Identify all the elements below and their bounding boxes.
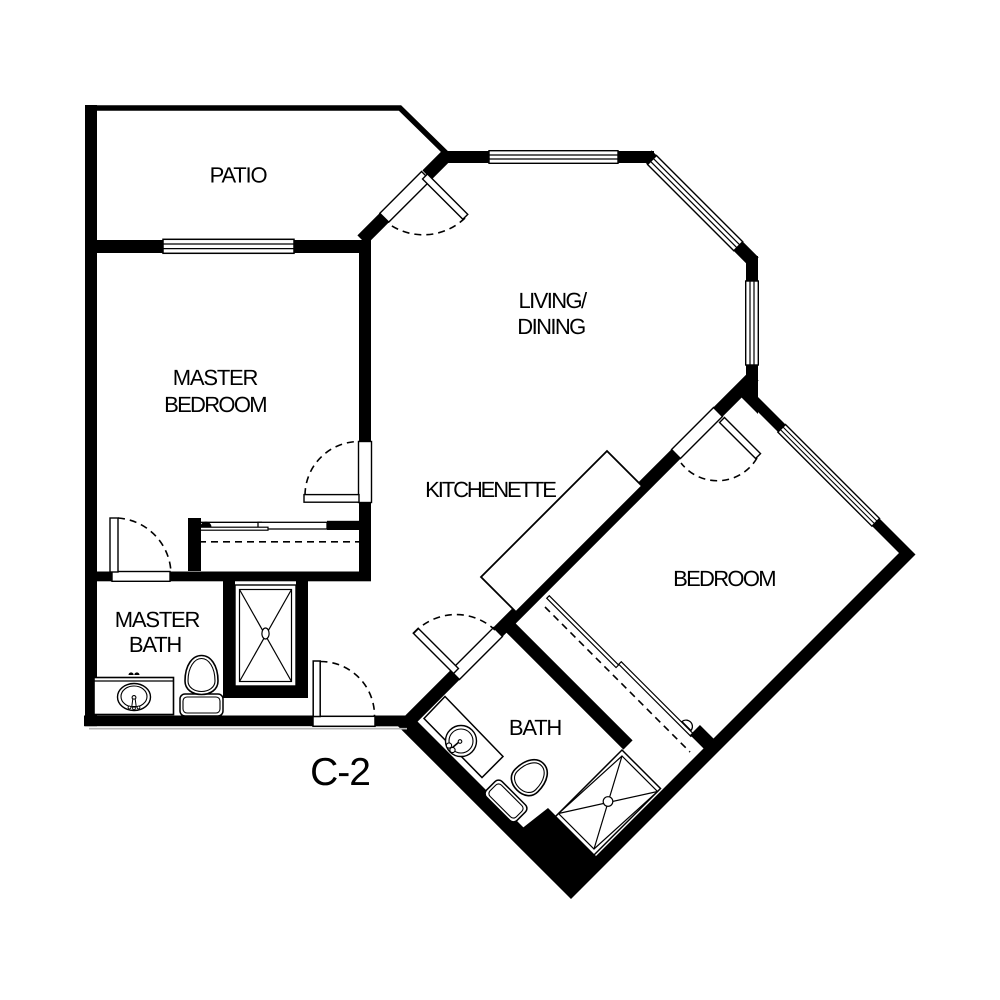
svg-text:BEDROOM: BEDROOM <box>673 566 775 591</box>
svg-text:BATH: BATH <box>129 632 182 657</box>
svg-text:BATH: BATH <box>509 715 562 740</box>
svg-text:DINING: DINING <box>517 314 585 339</box>
svg-text:PATIO: PATIO <box>210 162 268 187</box>
svg-text:LIVING/: LIVING/ <box>518 288 588 313</box>
svg-text:MASTER: MASTER <box>115 607 200 632</box>
svg-text:BEDROOM: BEDROOM <box>164 392 266 417</box>
svg-text:C-2: C-2 <box>310 751 370 794</box>
svg-text:MASTER: MASTER <box>173 365 258 390</box>
svg-text:KITCHENETTE: KITCHENETTE <box>425 477 556 502</box>
